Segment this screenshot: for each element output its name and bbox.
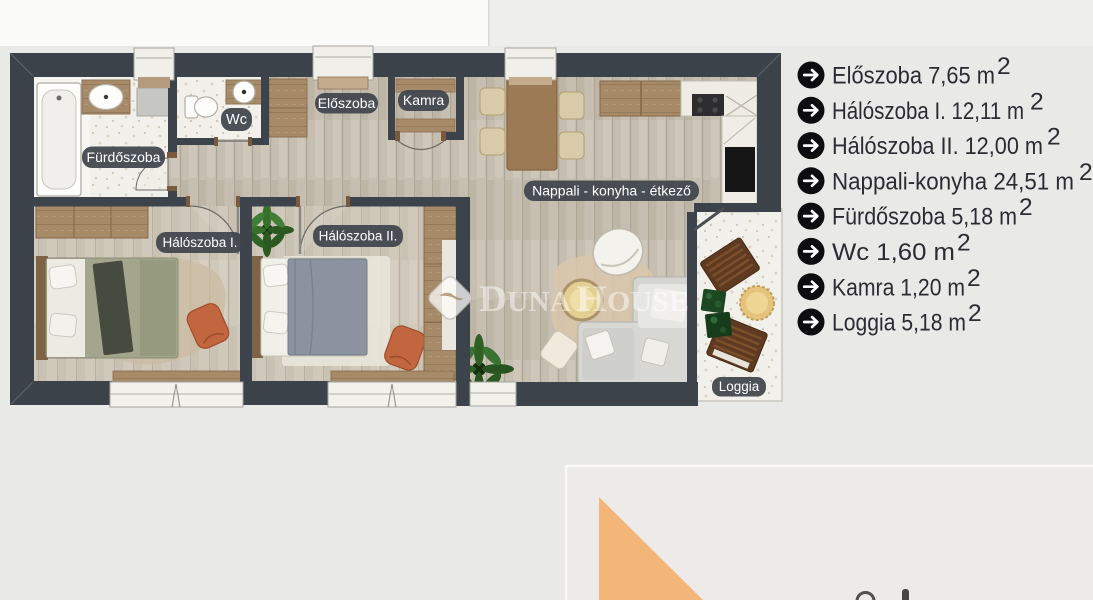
svg-text:Wc: Wc (226, 112, 247, 128)
svg-text:Hálószoba I.: Hálószoba I. (162, 235, 237, 250)
svg-text:Hálószoba I. 12,11 m: Hálószoba I. 12,11 m (832, 98, 1024, 125)
svg-text:2: 2 (1019, 194, 1033, 221)
svg-text:Kamra 1,20 m: Kamra 1,20 m (832, 274, 965, 301)
svg-text:2: 2 (1079, 159, 1093, 186)
svg-text:2: 2 (957, 230, 971, 257)
svg-text:Fürdőszoba: Fürdőszoba (87, 149, 161, 165)
svg-text:2: 2 (968, 300, 982, 327)
svg-text:Loggia 5,18 m: Loggia 5,18 m (832, 310, 966, 337)
svg-text:Fürdőszoba 5,18 m: Fürdőszoba 5,18 m (832, 204, 1017, 231)
svg-text:Előszoba 7,65 m: Előszoba 7,65 m (832, 63, 995, 90)
svg-text:2: 2 (1047, 124, 1061, 151)
svg-text:Előszoba: Előszoba (318, 95, 376, 111)
svg-text:2: 2 (997, 53, 1011, 80)
svg-text:Hálószoba II. 12,00 m: Hálószoba II. 12,00 m (832, 133, 1043, 160)
svg-text:Loggia: Loggia (719, 379, 760, 394)
svg-text:Hálószoba II.: Hálószoba II. (319, 229, 398, 244)
svg-text:Nappali - konyha - étkező: Nappali - konyha - étkező (532, 183, 691, 199)
svg-text:2: 2 (967, 265, 981, 292)
svg-text:2: 2 (1030, 88, 1044, 115)
svg-text:Wc 1,60 m: Wc 1,60 m (832, 239, 955, 266)
svg-text:Kamra: Kamra (403, 92, 444, 108)
svg-text:Nappali-konyha 24,51 m: Nappali-konyha 24,51 m (832, 168, 1074, 195)
